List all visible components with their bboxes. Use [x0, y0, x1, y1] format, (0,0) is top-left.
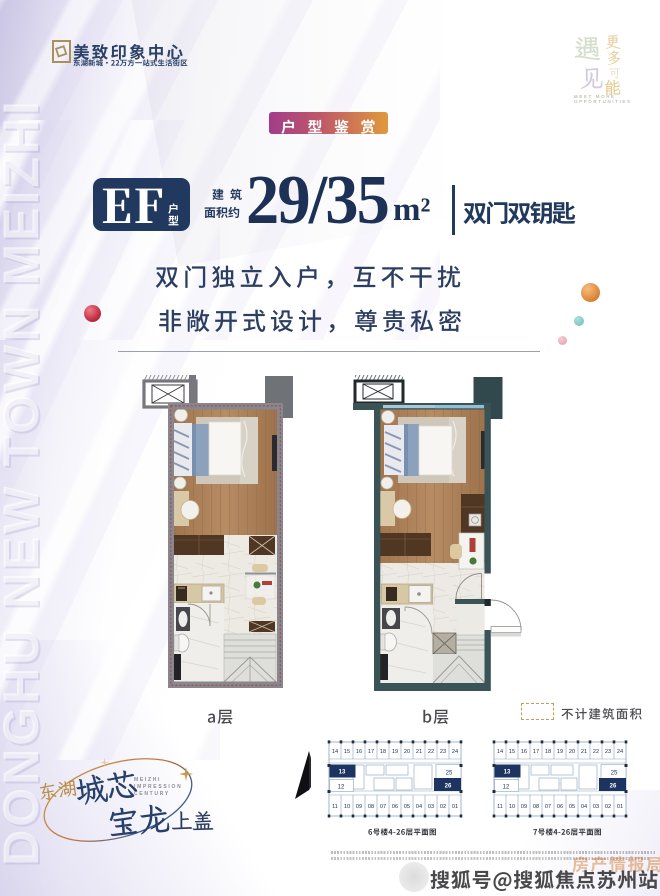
svg-text:10: 10 — [509, 804, 515, 810]
svg-text:13: 13 — [504, 770, 511, 776]
svg-text:05: 05 — [569, 804, 575, 810]
svg-text:15: 15 — [344, 749, 350, 755]
svg-text:07: 07 — [380, 804, 386, 810]
svg-text:18: 18 — [545, 749, 551, 755]
svg-text:23: 23 — [440, 749, 446, 755]
svg-text:04: 04 — [416, 804, 422, 810]
svg-text:02: 02 — [440, 804, 446, 810]
svg-text:13: 13 — [339, 770, 346, 776]
svg-text:24: 24 — [452, 749, 458, 755]
svg-text:19: 19 — [392, 749, 398, 755]
svg-text:04: 04 — [581, 804, 587, 810]
svg-text:14: 14 — [497, 749, 503, 755]
svg-text:25: 25 — [611, 771, 618, 777]
svg-text:08: 08 — [368, 804, 374, 810]
svg-text:20: 20 — [569, 749, 575, 755]
svg-text:09: 09 — [521, 804, 527, 810]
svg-text:06: 06 — [557, 804, 563, 810]
svg-text:02: 02 — [605, 804, 611, 810]
svg-text:21: 21 — [581, 749, 587, 755]
svg-text:10: 10 — [344, 804, 350, 810]
svg-text:01: 01 — [617, 804, 623, 810]
svg-text:21: 21 — [416, 749, 422, 755]
svg-text:19: 19 — [557, 749, 563, 755]
svg-text:11: 11 — [332, 804, 338, 810]
svg-text:17: 17 — [368, 749, 374, 755]
svg-text:01: 01 — [452, 804, 458, 810]
svg-text:14: 14 — [332, 749, 338, 755]
svg-text:25: 25 — [446, 771, 453, 777]
svg-text:26: 26 — [610, 784, 617, 790]
svg-text:26: 26 — [445, 784, 452, 790]
svg-text:22: 22 — [428, 749, 434, 755]
svg-text:15: 15 — [509, 749, 515, 755]
svg-text:09: 09 — [356, 804, 362, 810]
svg-text:23: 23 — [605, 749, 611, 755]
svg-text:17: 17 — [533, 749, 539, 755]
svg-text:07: 07 — [545, 804, 551, 810]
svg-text:16: 16 — [356, 749, 362, 755]
svg-text:12: 12 — [503, 785, 510, 791]
svg-text:06: 06 — [392, 804, 398, 810]
svg-text:18: 18 — [380, 749, 386, 755]
svg-text:22: 22 — [593, 749, 599, 755]
svg-text:20: 20 — [404, 749, 410, 755]
svg-text:11: 11 — [497, 804, 503, 810]
svg-text:24: 24 — [617, 749, 623, 755]
svg-text:05: 05 — [404, 804, 410, 810]
svg-text:12: 12 — [338, 785, 345, 791]
svg-text:16: 16 — [521, 749, 527, 755]
svg-text:03: 03 — [428, 804, 434, 810]
svg-text:08: 08 — [533, 804, 539, 810]
svg-text:03: 03 — [593, 804, 599, 810]
